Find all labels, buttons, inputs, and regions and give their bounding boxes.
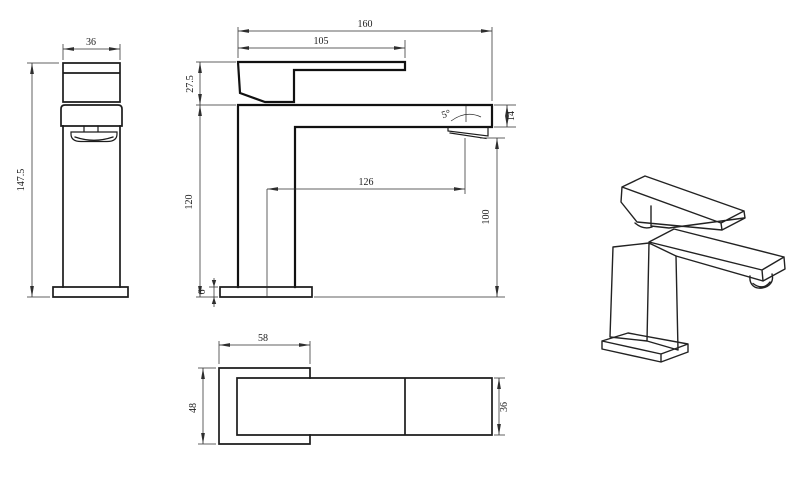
dim-base-thickness: 6 [197, 290, 208, 295]
dim-spout-reach: 126 [359, 177, 374, 188]
dim-base-depth: 48 [188, 403, 199, 413]
dim-body-height: 120 [184, 195, 195, 210]
dim-spout-width: 36 [499, 402, 510, 412]
dim-base-length: 58 [258, 333, 268, 344]
faucet-technical-drawing: 36 147.5 160 105 27.5 120 126 100 14 6 5… [0, 0, 800, 478]
drawing-svg: 36 147.5 160 105 27.5 120 126 100 14 6 5… [0, 0, 800, 478]
dim-handle-height: 27.5 [185, 75, 196, 93]
dim-handle-length: 105 [314, 36, 329, 47]
dim-spout-end-height: 14 [506, 111, 517, 121]
dim-side-width: 36 [86, 37, 96, 48]
dim-outlet-height: 100 [481, 210, 492, 225]
dim-side-height: 147.5 [16, 169, 27, 192]
dim-overall-length: 160 [358, 19, 373, 30]
